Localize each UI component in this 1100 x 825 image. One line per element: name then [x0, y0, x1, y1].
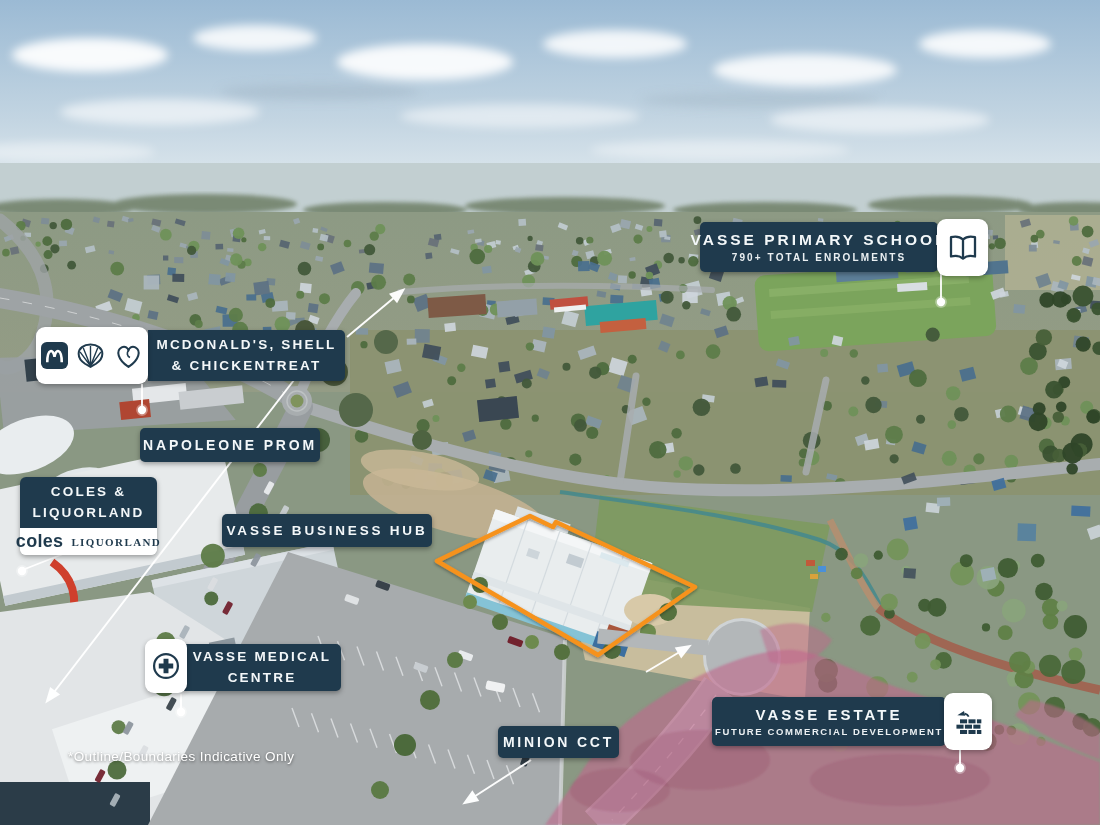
mcdonalds-arches-icon [41, 342, 68, 369]
school-icon-box [937, 219, 988, 276]
estate-title: VASSE ESTATE [756, 706, 903, 723]
medical-line2: CENTRE [228, 668, 297, 688]
arrow-minion-cct [466, 760, 531, 802]
coles-label-dark: COLES & LIQUORLAND [20, 477, 157, 528]
label-vasse-medical-centre: VASSE MEDICAL CENTRE [183, 644, 341, 691]
label-minion-cct: MINION CCT [498, 726, 619, 758]
chickentreat-heart-icon [113, 341, 144, 371]
label-napoleone-prom: NAPOLEONE PROM [140, 428, 320, 462]
fast-food-line2: & CHICKENTREAT [172, 356, 322, 376]
label-vasse-estate: VASSE ESTATE FUTURE COMMERCIAL DEVELOPME… [712, 697, 946, 746]
label-vasse-business-hub: VASSE BUSINESS HUB [222, 514, 432, 547]
medical-line1: VASSE MEDICAL [193, 647, 332, 667]
liquorland-logo: LIQUORLAND [71, 536, 161, 548]
aerial-site-map: VASSE PRIMARY SCHOOL 790+ TOTAL ENROLMEN… [0, 0, 1100, 825]
fast-food-logo-box [36, 327, 148, 384]
medical-icon-box [145, 639, 187, 693]
school-title: VASSE PRIMARY SCHOOL [691, 231, 948, 249]
shell-icon [75, 341, 106, 371]
label-coles-liquorland: COLES & LIQUORLAND coles LIQUORLAND [20, 477, 157, 555]
disclaimer-text: *Outline/Boundaries Indicative Only [68, 749, 294, 764]
label-fast-food: MCDONALD'S, SHELL & CHICKENTREAT [148, 330, 345, 381]
label-vasse-primary-school: VASSE PRIMARY SCHOOL 790+ TOTAL ENROLMEN… [700, 222, 938, 272]
napoleone-title: NAPOLEONE PROM [143, 437, 317, 453]
open-book-icon [947, 234, 979, 262]
minion-title: MINION CCT [503, 734, 614, 750]
property-boundary-outline [437, 516, 695, 655]
arrow-cul-de-sac [646, 647, 688, 672]
estate-subtitle: FUTURE COMMERCIAL DEVELOPMENT [715, 726, 943, 737]
estate-icon-box [944, 693, 992, 750]
arrow-to-northeast [347, 291, 402, 337]
school-subtitle: 790+ TOTAL ENROLMENTS [732, 252, 906, 263]
medical-cross-icon [151, 651, 181, 681]
construction-bricks-icon [952, 706, 984, 738]
fast-food-line1: MCDONALD'S, SHELL [156, 335, 336, 355]
business-hub-title: VASSE BUSINESS HUB [227, 523, 428, 538]
coles-line1: COLES & [51, 482, 126, 502]
coles-logo: coles [16, 531, 64, 552]
coles-logo-box: coles LIQUORLAND [20, 528, 157, 555]
coles-line2: LIQUORLAND [33, 503, 145, 523]
